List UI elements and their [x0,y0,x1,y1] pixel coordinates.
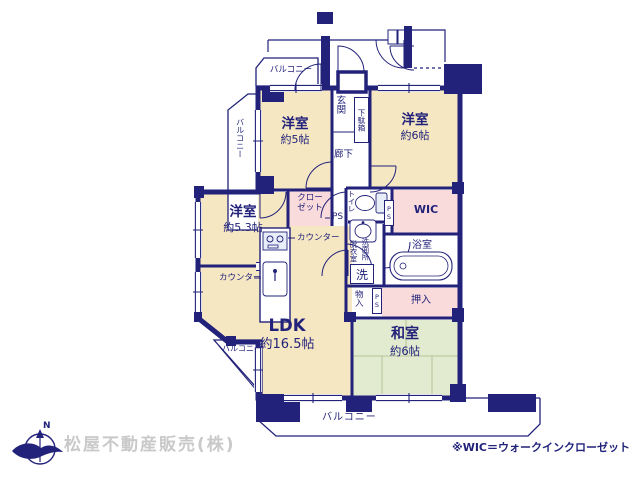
room-name: 洋室 [198,204,288,221]
door-arc-entrance [338,46,364,72]
closet-label-line2: ゼット [288,203,332,213]
getabako-box: 下駄箱 [354,97,369,143]
balcony-label-bottom-left: バルコニー [222,344,262,354]
room-label-yoshitsu6: 洋室 約6帖 [370,112,460,143]
compass-n-label: N [43,421,51,432]
window [193,272,203,312]
bath-label: 浴室 [384,240,460,252]
room-size: 約6帖 [370,129,460,143]
oshiire-label: 押入 [382,295,460,307]
room-label-washitsu: 和室 約6帖 [352,326,458,358]
window [376,393,442,403]
balcony-label-left: バルコニー [235,118,245,158]
ps-label-hall: PS [332,212,343,223]
genkan-label: 玄関 [334,95,345,114]
compass-north-icon [12,429,63,464]
balcony-label-top: バルコニー [266,65,316,75]
room-label-yoshitsu53: 洋室 約5.3帖 [198,204,288,235]
toilet-icon [356,193,388,213]
balcony-label-bottom: バルコニー [322,412,377,424]
room-size: 約5.3帖 [198,221,288,235]
laundry-box: 洗 [350,264,374,284]
room-size: 約6帖 [352,344,458,358]
stove-icon [263,232,287,250]
ps-label: PS [385,205,393,221]
counter-label-2: カウンター [219,273,262,283]
room-name: 和室 [352,326,458,344]
company-name: 松屋不動産販売(株) [64,435,236,455]
entrance-porch [338,72,366,92]
ps-label: PS [373,293,381,309]
window [284,393,342,403]
kitchen-counter [260,228,290,322]
laundry-label: 洗 [356,266,368,283]
monoire-label: 物入 [353,290,363,307]
room-name: 洋室 [370,112,460,129]
window [253,348,263,392]
ps-box-2: PS [372,288,382,314]
kitchen-sink-icon [263,262,287,296]
senmenjo-label: 洗面所 [361,238,370,261]
closet-label-line1: クロー [288,193,332,203]
floorplan-page: 洋室 約5帖 洋室 約6帖 洋室 約5.3帖 LDK 約16.5帖 和室 約6帖… [0,0,640,480]
door-arc [306,162,332,188]
room-label-yoshitsu5: 洋室 約5帖 [258,116,332,147]
toilet-label: トイレ [347,190,356,213]
wic-note: ※WIC＝ウォークインクローゼット [330,441,630,454]
rouka-label: 廊下 [334,149,353,160]
room-size: 約5帖 [258,133,332,147]
getabako-label: 下駄箱 [356,109,367,132]
room-name: LDK [226,316,348,337]
datsuishitsu-label: 脱衣室 [349,240,358,263]
wic-label: WIC [392,203,460,216]
room-name: 洋室 [258,116,332,133]
meter-box-icon [388,30,397,44]
bathtub-icon [390,252,452,280]
ps-box-1: PS [384,200,394,226]
window [378,83,440,93]
door-arc [322,250,348,276]
counter-label-1: カウンター [297,233,340,243]
closet-label: クロー ゼット [288,193,332,213]
